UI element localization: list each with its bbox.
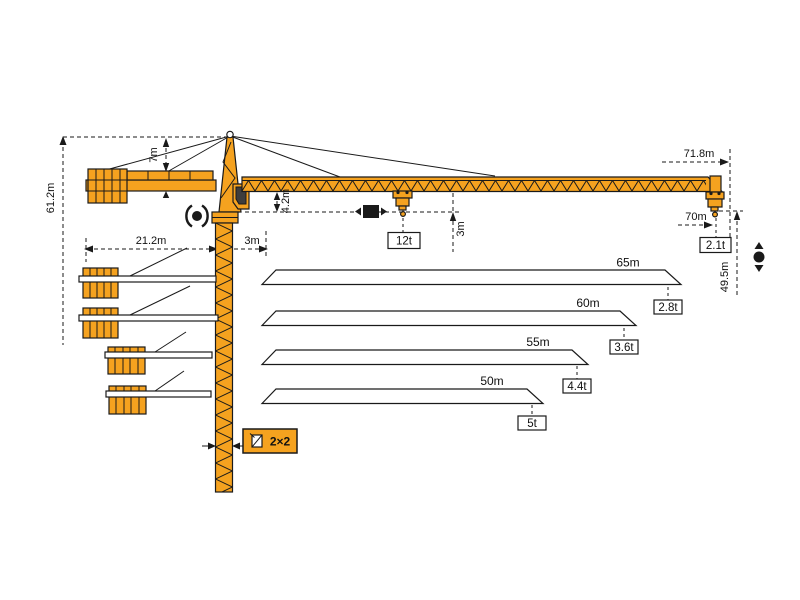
rear-offset-label: 3m — [244, 235, 259, 247]
max-radius-label: 71.8m — [684, 148, 715, 160]
hoist-up-down-icon — [754, 242, 765, 272]
jib-variant-65m-length: 65m — [616, 256, 639, 270]
mast-section-label: 2×2 — [270, 435, 291, 449]
slewing-collar — [212, 212, 238, 223]
crane-diagram: 61.2m 7m 21.2m 3m — [0, 0, 800, 600]
hook-path-label: 3m — [455, 221, 467, 236]
max-load-value: 12t — [396, 236, 413, 248]
jib-variant-55m: 55m 4.4t — [262, 335, 591, 393]
crane-diagram-svg: 61.2m 7m 21.2m 3m — [0, 0, 800, 600]
dimension-rear-offset: 3m — [234, 231, 268, 259]
jib-variant-55m-length: 55m — [526, 335, 549, 349]
jib-variant-60m: 60m 3.6t — [262, 296, 638, 354]
head-height-label: 7m — [148, 147, 160, 162]
counterweight-row-1 — [79, 248, 216, 298]
counterjib-ballast-block — [88, 169, 127, 203]
jib-variant-55m-load: 4.4t — [567, 381, 587, 393]
jib-variant-65m: 65m 2.8t — [262, 256, 682, 315]
dimension-jib-clearance: 4.2m — [245, 189, 462, 213]
tower-mast — [216, 223, 233, 492]
jib-variant-50m-load: 5t — [527, 418, 537, 430]
under-hook-height-label: 49.5m — [719, 262, 731, 293]
counterweight-row-4 — [106, 371, 211, 414]
jib-clearance-label: 4.2m — [280, 189, 292, 213]
hook-icon — [401, 210, 406, 216]
main-jib — [242, 176, 722, 192]
counterweight-row-3 — [105, 332, 212, 374]
apex-point — [227, 131, 233, 137]
dimension-counterjib-radius: 21.2m — [84, 235, 218, 262]
jib-trolley — [393, 191, 412, 217]
overall-height-label: 61.2m — [45, 183, 57, 214]
mast-section-box: 2×2 — [243, 429, 297, 453]
hook-radius-label: 70m — [685, 211, 706, 223]
counterjib-radius-label: 21.2m — [136, 235, 167, 247]
dimension-under-hook-height: 49.5m — [719, 211, 740, 297]
trolley-travel-icon — [355, 205, 387, 218]
tip-load-value: 2.1t — [706, 240, 726, 252]
max-load-callout: 12t — [388, 218, 420, 249]
jib-variant-50m: 50m 5t — [262, 374, 546, 430]
jib-tip-trolley — [706, 192, 724, 217]
dimension-hook-path: 3m — [450, 193, 467, 252]
jib-variant-60m-length: 60m — [576, 296, 599, 310]
mast-cross-section-icon — [250, 434, 262, 448]
jib-variant-50m-length: 50m — [480, 374, 503, 388]
jib-variant-60m-load: 3.6t — [614, 342, 634, 354]
dimension-hook-radius: 70m — [678, 211, 713, 229]
counter-jib — [86, 169, 216, 203]
tip-hook-icon — [713, 211, 718, 217]
rotation-icon — [186, 206, 207, 227]
jib-variant-65m-load: 2.8t — [658, 302, 678, 314]
